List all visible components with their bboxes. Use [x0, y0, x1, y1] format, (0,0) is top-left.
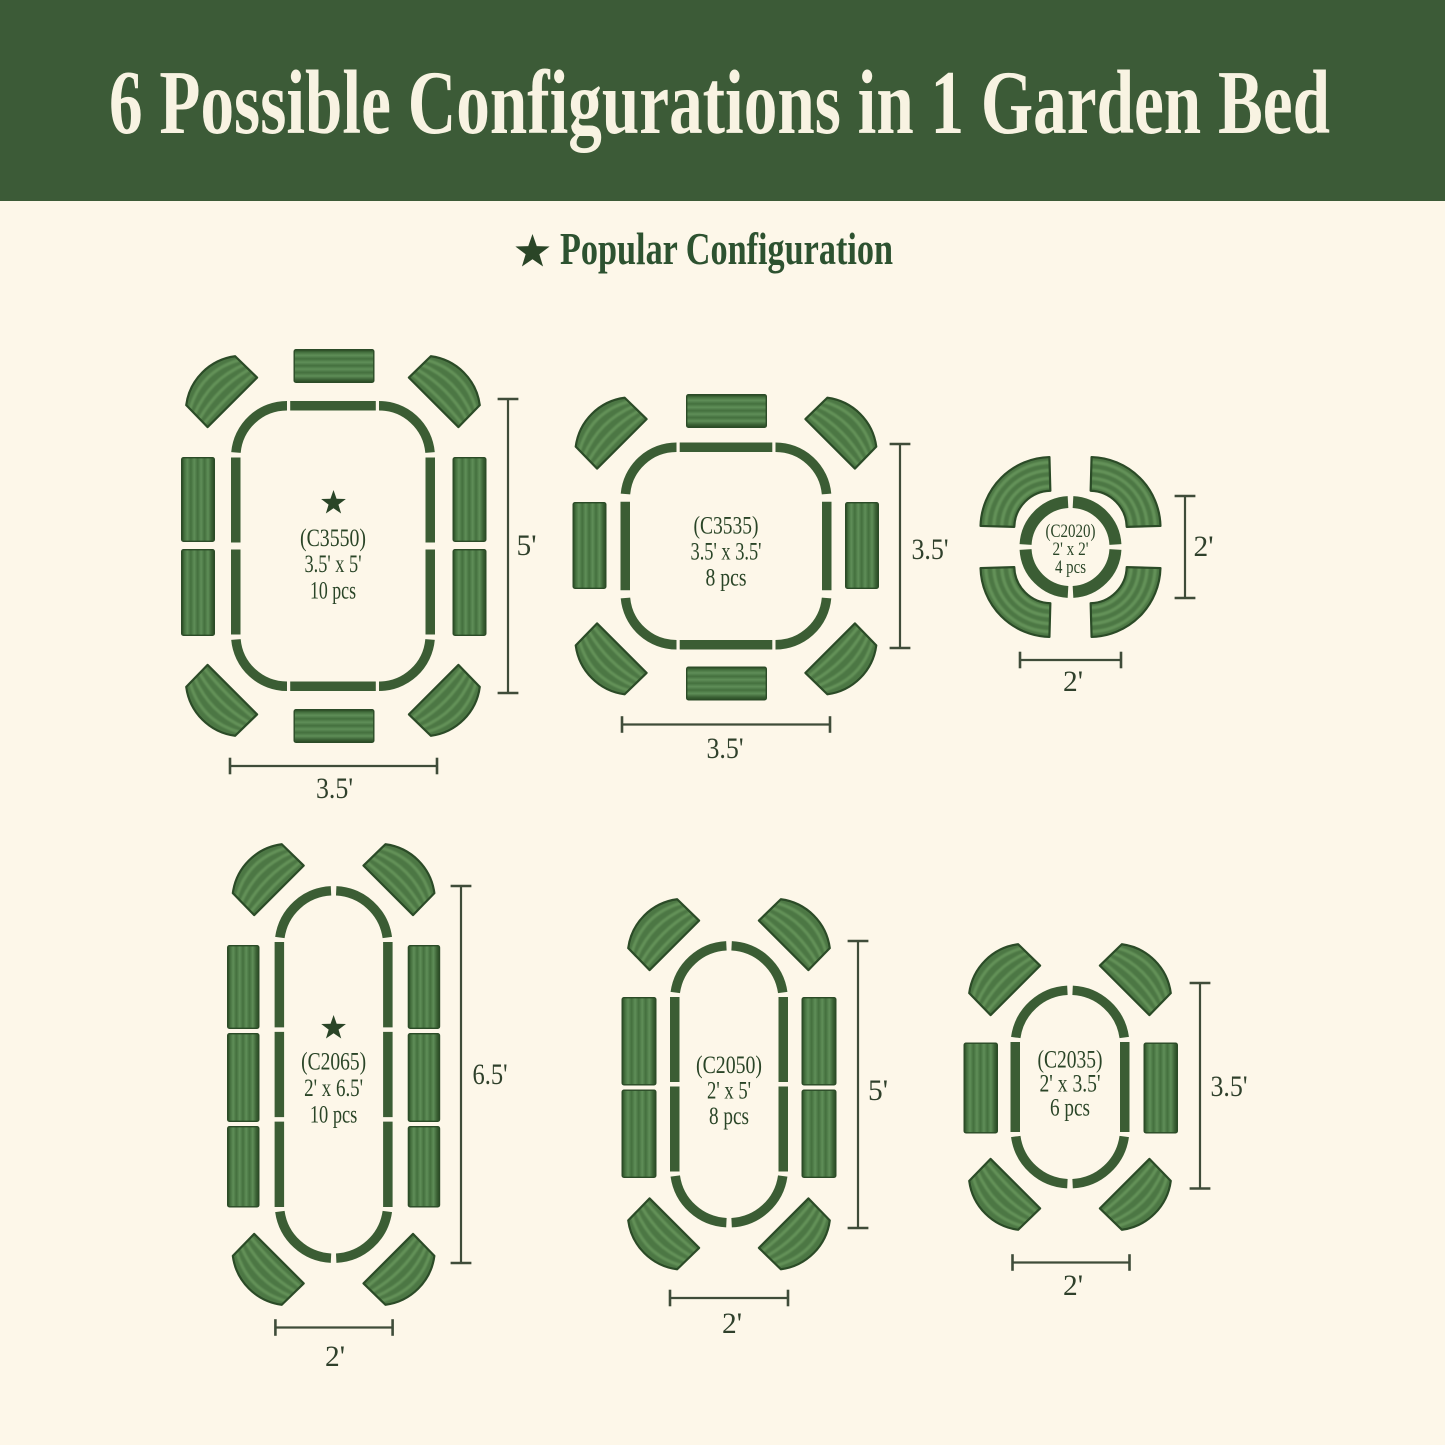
svg-text:10 pcs: 10 pcs — [310, 576, 356, 605]
svg-text:3.5': 3.5' — [316, 772, 353, 805]
svg-text:3.5' x 5': 3.5' x 5' — [305, 549, 362, 578]
svg-text:2': 2' — [722, 1307, 742, 1340]
svg-text:(C3550): (C3550) — [300, 523, 366, 552]
svg-text:2': 2' — [1063, 665, 1083, 698]
svg-text:8 pcs: 8 pcs — [709, 1101, 749, 1130]
svg-text:5': 5' — [517, 529, 537, 562]
svg-text:Popular Configuration: Popular Configuration — [560, 224, 893, 274]
svg-text:8 pcs: 8 pcs — [706, 563, 747, 592]
svg-text:5': 5' — [868, 1074, 888, 1107]
svg-text:3.5': 3.5' — [912, 533, 949, 566]
svg-text:2': 2' — [1063, 1269, 1083, 1302]
svg-text:2' x 6.5': 2' x 6.5' — [304, 1073, 363, 1102]
svg-text:6 pcs: 6 pcs — [1050, 1093, 1090, 1122]
svg-text:(C2065): (C2065) — [301, 1047, 366, 1076]
svg-text:6 Possible Configurations in 1: 6 Possible Configurations in 1 Garden Be… — [109, 52, 1330, 153]
svg-text:2': 2' — [325, 1340, 345, 1373]
svg-text:3.5': 3.5' — [707, 732, 744, 765]
svg-text:4 pcs: 4 pcs — [1055, 557, 1086, 578]
svg-text:6.5': 6.5' — [473, 1058, 508, 1091]
svg-text:3.5': 3.5' — [1211, 1070, 1248, 1103]
svg-text:(C3535): (C3535) — [694, 511, 759, 540]
svg-text:2': 2' — [1194, 530, 1214, 563]
svg-text:10 pcs: 10 pcs — [310, 1100, 358, 1129]
svg-text:3.5' x 3.5': 3.5' x 3.5' — [691, 537, 762, 566]
